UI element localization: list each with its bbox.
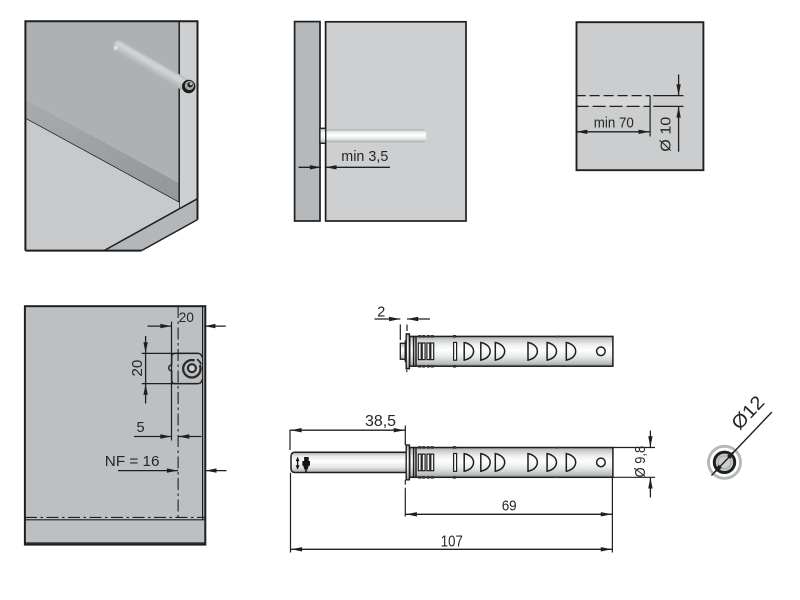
svg-text:Ø 10: Ø 10 bbox=[658, 117, 675, 152]
svg-text:Ø12: Ø12 bbox=[728, 392, 769, 434]
svg-text:2: 2 bbox=[377, 304, 385, 321]
svg-text:69: 69 bbox=[502, 498, 517, 515]
svg-text:107: 107 bbox=[441, 533, 463, 550]
svg-text:38,5: 38,5 bbox=[365, 413, 396, 430]
svg-text:5: 5 bbox=[137, 420, 145, 436]
svg-text:Ø 9,8: Ø 9,8 bbox=[632, 446, 649, 478]
svg-text:min 3,5: min 3,5 bbox=[341, 149, 388, 165]
svg-text:20: 20 bbox=[129, 360, 146, 377]
svg-text:min 70: min 70 bbox=[594, 116, 634, 132]
svg-text:NF = 16: NF = 16 bbox=[105, 453, 160, 470]
svg-text:20: 20 bbox=[179, 310, 195, 325]
